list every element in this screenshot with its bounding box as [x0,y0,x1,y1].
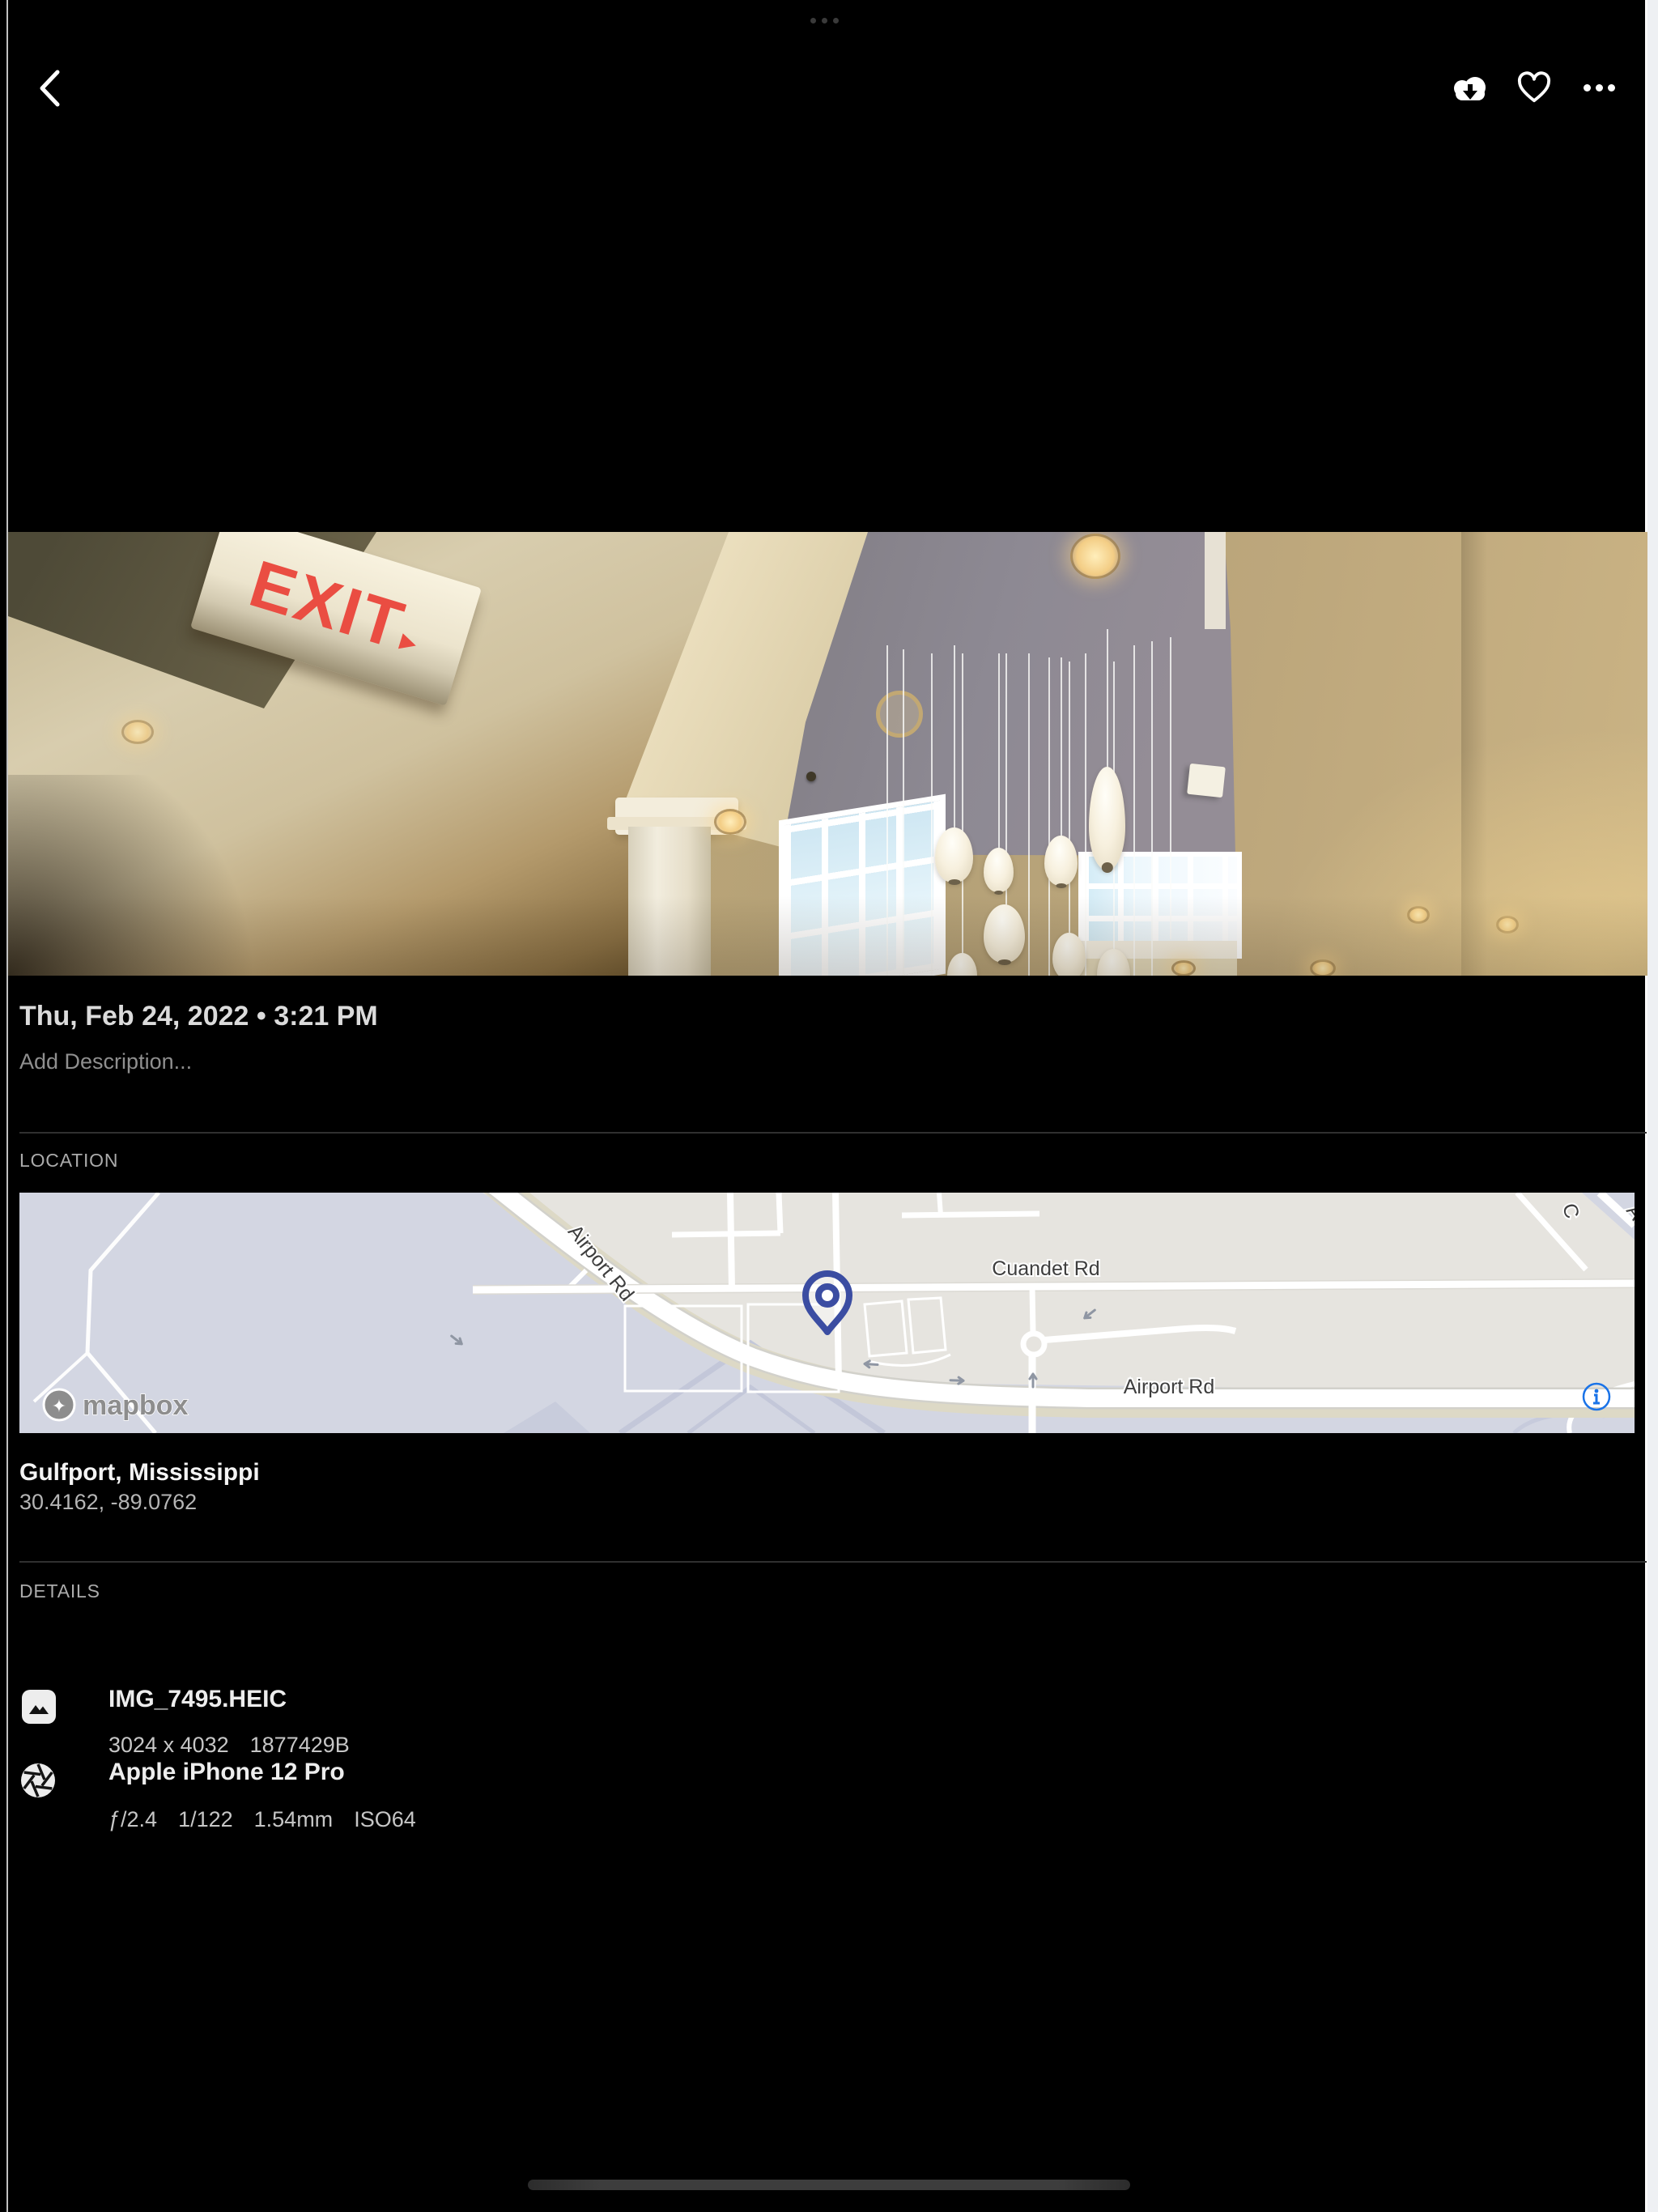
location-map[interactable]: Airport Rd Cuandet Rd Airport Rd C Airp … [19,1193,1635,1433]
next-photo-edge[interactable] [1647,0,1658,2212]
details-header: DETAILS [19,1580,100,1602]
heart-icon [1516,95,1553,108]
map-label-cuandet-rd: Cuandet Rd [992,1257,1099,1280]
location-header: LOCATION [19,1150,118,1172]
map-label-airport-rd-horizontal: Airport Rd [1124,1376,1215,1398]
prev-photo-edge[interactable] [6,0,8,2212]
mapbox-wordmark: mapbox [83,1390,188,1421]
camera-model: Apple iPhone 12 Pro [108,1759,345,1786]
file-meta: 3024 x 4032 1877429B [108,1733,371,1758]
image-icon [21,1689,57,1729]
camera-focal-length: 1.54mm [254,1807,334,1832]
location-place: Gulfport, Mississippi [19,1459,260,1487]
file-size: 1877429B [250,1733,350,1758]
description-input[interactable]: Add Description... [19,1049,192,1074]
download-button[interactable] [1446,74,1494,112]
favorite-button[interactable] [1516,70,1553,109]
camera-iso: ISO64 [354,1807,416,1832]
location-coordinates: 30.4162, -89.0762 [19,1490,197,1515]
photo-detail-screen: EXIT▸ [0,0,1658,2212]
photo-image[interactable]: EXIT▸ [8,532,1647,976]
photo-vignette [8,532,1647,976]
divider [19,1132,1647,1134]
back-button[interactable] [36,68,65,108]
aperture-icon [19,1762,57,1803]
camera-aperture: ƒ/2.4 [108,1807,157,1832]
more-options-button[interactable] [1584,84,1615,91]
file-dimensions: 3024 x 4032 [108,1733,229,1758]
file-name: IMG_7495.HEIC [108,1686,287,1713]
multitask-indicator[interactable] [810,18,839,23]
divider [19,1561,1647,1563]
mapbox-logo[interactable]: ✦ mapbox [44,1389,188,1421]
photo-date: Thu, Feb 24, 2022 • 3:21 PM [19,1001,378,1032]
svg-text:✦: ✦ [52,1396,66,1416]
camera-meta: ƒ/2.4 1/122 1.54mm ISO64 [108,1807,437,1832]
ellipsis-icon [1584,84,1615,91]
camera-shutter: 1/122 [178,1807,233,1832]
chevron-left-icon [36,98,65,112]
home-indicator[interactable] [528,2180,1130,2190]
